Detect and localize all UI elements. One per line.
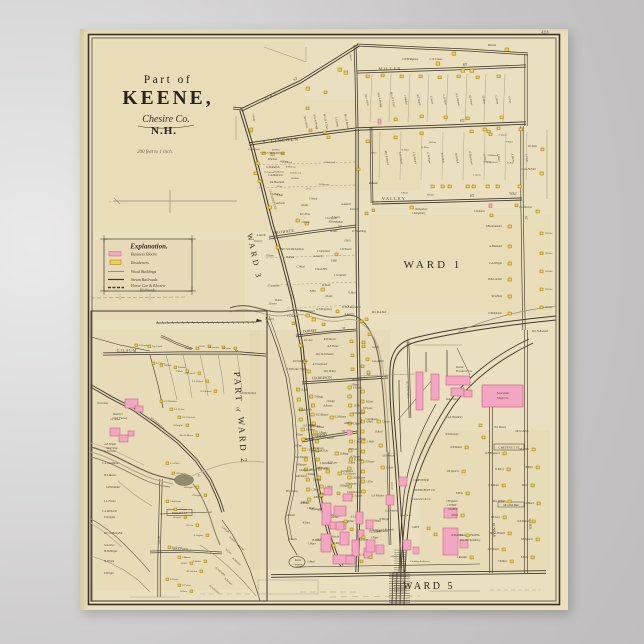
svg-text:A.Fay: A.Fay — [304, 188, 312, 191]
svg-text:L.L.Fisher: L.L.Fisher — [103, 500, 117, 503]
svg-text:Top Lamb: Top Lamb — [152, 345, 163, 348]
svg-text:J.Dodge: J.Dodge — [326, 400, 336, 403]
svg-text:F.Hill: F.Hill — [309, 290, 316, 293]
svg-text:C.L.Mills-Oh: C.L.Mills-Oh — [102, 510, 118, 513]
svg-text:CARPENTER: CARPENTER — [413, 479, 429, 482]
svg-text:Furniture Co.: Furniture Co. — [455, 369, 473, 373]
svg-text:G.A.Wheeler: G.A.Wheeler — [295, 456, 309, 459]
svg-text:P.C.Files: P.C.Files — [299, 213, 310, 216]
svg-text:ROAD: ROAD — [390, 481, 393, 490]
svg-text:G.H.Tyler: G.H.Tyler — [442, 94, 447, 106]
svg-text:J.Piper: J.Piper — [351, 384, 360, 387]
svg-text:O.Atherton: O.Atherton — [519, 206, 532, 209]
svg-text:W.Hale: W.Hale — [545, 232, 553, 235]
svg-text:W.H.Murray: W.H.Murray — [270, 152, 285, 155]
svg-text:A.T.Kingsbury: A.T.Kingsbury — [299, 310, 316, 313]
svg-text:4218: 4218 — [541, 31, 548, 35]
svg-text:A.E.Fisher: A.E.Fisher — [326, 345, 339, 348]
svg-text:A.T.Kingsbury: A.T.Kingsbury — [315, 308, 333, 311]
svg-text:E.Gerry: E.Gerry — [253, 240, 263, 243]
svg-text:O.Beal: O.Beal — [348, 462, 356, 465]
svg-text:ELM: ELM — [359, 416, 363, 423]
svg-text:O.Hart: O.Hart — [348, 291, 356, 294]
svg-text:A.Averill: A.Averill — [256, 234, 266, 237]
svg-text:B.White: B.White — [268, 158, 278, 161]
svg-text:Dunn & Co: Dunn & Co — [399, 514, 412, 517]
svg-text:ST: ST — [342, 326, 346, 330]
svg-text:A.Ellis: A.Ellis — [197, 345, 205, 348]
svg-text:H.Harper: H.Harper — [296, 463, 308, 466]
svg-text:MILLER: MILLER — [379, 66, 402, 71]
svg-text:J.Kingsbury: J.Kingsbury — [412, 212, 426, 215]
svg-text:E.Baker: E.Baker — [177, 366, 186, 369]
svg-text:E.F.Lane: E.F.Lane — [348, 448, 359, 451]
svg-text:A.Basye & Bros: A.Basye & Bros — [389, 555, 406, 558]
svg-text:W.E.Mason: W.E.Mason — [450, 446, 463, 449]
svg-text:S.Ball: S.Ball — [272, 193, 279, 196]
svg-text:W.Dart: W.Dart — [327, 437, 335, 440]
svg-text:C.Rule: C.Rule — [354, 441, 362, 444]
svg-text:J.Towns: J.Towns — [268, 302, 276, 305]
svg-text:A.Fay: A.Fay — [275, 185, 283, 188]
svg-text:R.Toole: R.Toole — [321, 284, 331, 287]
svg-text:C.Rule: C.Rule — [386, 467, 394, 470]
svg-text:Abel Raymond: Abel Raymond — [351, 378, 368, 381]
svg-text:E.Howland: E.Howland — [247, 148, 260, 151]
svg-text:G.W.Piper: G.W.Piper — [426, 152, 431, 165]
svg-text:W.Dart: W.Dart — [298, 409, 306, 412]
svg-text:S.Dickinson: S.Dickinson — [299, 469, 312, 472]
svg-text:G.REY: G.REY — [412, 526, 420, 529]
svg-text:D.Rugg: D.Rugg — [314, 396, 324, 399]
svg-text:W.Hale: W.Hale — [545, 252, 553, 255]
svg-text:BRIGHT ST: BRIGHT ST — [172, 511, 188, 515]
svg-text:S.Porter: S.Porter — [223, 347, 231, 350]
svg-text:E.Gerry: E.Gerry — [349, 208, 360, 211]
svg-text:O.Hale: O.Hale — [180, 590, 188, 593]
svg-text:Mrs H.Way: Mrs H.Way — [323, 370, 337, 373]
svg-text:Keene: Keene — [294, 559, 302, 562]
svg-text:J.W.Bowker Chipps: J.W.Bowker Chipps — [287, 368, 307, 371]
svg-text:HARRISON: HARRISON — [312, 376, 332, 381]
svg-text:WASHINGTON: WASHINGTON — [287, 280, 296, 300]
svg-text:R.W.Sawyer: R.W.Sawyer — [323, 338, 337, 341]
svg-text:Mrs W.J.Wheeler: Mrs W.J.Wheeler — [315, 353, 335, 356]
svg-text:A.Richards: A.Richards — [315, 467, 328, 470]
svg-text:H.Wright: H.Wright — [103, 560, 115, 563]
svg-text:J.W.Towns: J.W.Towns — [340, 248, 352, 251]
svg-text:C.N.Chase: C.N.Chase — [429, 57, 443, 61]
svg-text:J.Arnold: J.Arnold — [285, 514, 295, 517]
svg-text:H.Ray: H.Ray — [506, 161, 514, 164]
svg-text:J.Ellis: J.Ellis — [353, 405, 360, 408]
svg-text:E.Knights: E.Knights — [103, 516, 115, 519]
svg-text:M.Alls: M.Alls — [325, 295, 333, 298]
svg-text:Part of: Part of — [144, 74, 192, 86]
svg-text:J.B.Spencer: J.B.Spencer — [447, 470, 460, 473]
svg-text:W.Murray: W.Murray — [274, 170, 285, 173]
svg-text:Fielding & Stearns: Fielding & Stearns — [409, 560, 429, 563]
svg-text:B.White: B.White — [272, 149, 281, 152]
svg-text:S.P.Whitaker: S.P.Whitaker — [164, 400, 177, 403]
svg-text:A.Ball: A.Ball — [300, 389, 308, 392]
svg-text:W.F.Bragmore: W.F.Bragmore — [485, 452, 501, 455]
svg-text:C.Babcock: C.Babcock — [324, 161, 336, 164]
svg-text:P.C.Lee: P.C.Lee — [303, 339, 313, 342]
svg-text:Shop Co.: Shop Co. — [497, 396, 509, 400]
svg-text:E.Howland: E.Howland — [259, 151, 272, 154]
svg-text:E.F.Lane: E.F.Lane — [304, 438, 315, 441]
svg-text:H.Harper: H.Harper — [349, 455, 361, 458]
svg-text:S.P.Whitaker: S.P.Whitaker — [106, 486, 121, 489]
svg-text:W.Dart: W.Dart — [366, 401, 374, 404]
svg-text:O.Fox: O.Fox — [507, 96, 512, 104]
svg-text:W.Hale: W.Hale — [427, 193, 435, 196]
svg-text:J.Q.Jones: J.Q.Jones — [468, 94, 473, 105]
svg-text:A.Brown: A.Brown — [322, 404, 333, 407]
svg-text:J.Piper: J.Piper — [310, 508, 319, 511]
svg-text:A.Richards: A.Richards — [375, 530, 388, 533]
svg-text:M.Amidon: M.Amidon — [208, 346, 220, 349]
svg-text:E.Staples: E.Staples — [193, 534, 203, 537]
svg-text:C.Rule: C.Rule — [311, 489, 319, 492]
svg-text:G.Farwell: G.Farwell — [104, 450, 116, 453]
svg-text:W.Hale: W.Hale — [545, 288, 553, 291]
svg-text:Mrs L.Perry: Mrs L.Perry — [514, 430, 529, 433]
svg-text:W.Dart: W.Dart — [347, 520, 355, 523]
svg-text:Mrs M.Hall: Mrs M.Hall — [492, 500, 506, 503]
svg-text:C.Fisher: C.Fisher — [182, 584, 191, 587]
svg-text:C.H.Bridgman: C.H.Bridgman — [402, 58, 419, 61]
svg-text:A.Hubbard: A.Hubbard — [488, 244, 502, 248]
svg-text:L.L.Fisher: L.L.Fisher — [173, 408, 185, 411]
svg-text:Mrs Olds: Mrs Olds — [518, 448, 529, 451]
svg-text:J.Piper: J.Piper — [355, 495, 364, 498]
svg-text:W.Smith: W.Smith — [173, 516, 182, 519]
svg-text:A.Ball: A.Ball — [365, 421, 373, 424]
svg-text:D.Tolery: D.Tolery — [494, 468, 505, 471]
svg-text:W.Hale: W.Hale — [545, 270, 553, 273]
svg-text:Mrs O.Morse: Mrs O.Morse — [179, 434, 194, 437]
svg-text:S.Porter: S.Porter — [170, 578, 178, 581]
svg-text:PEARL: PEARL — [157, 535, 161, 545]
svg-text:F.Foster: F.Foster — [364, 461, 375, 464]
svg-text:Wood Buildings: Wood Buildings — [131, 269, 157, 274]
svg-text:J.Adams: J.Adams — [473, 173, 482, 176]
svg-text:A.Knight: A.Knight — [177, 508, 187, 511]
svg-text:C.Wood: C.Wood — [296, 265, 305, 268]
svg-text:S.Randall: S.Randall — [457, 556, 467, 559]
svg-text:N.Batch: N.Batch — [525, 502, 535, 505]
svg-text:W.Dinsmore: W.Dinsmore — [445, 433, 459, 436]
svg-text:F.Foster: F.Foster — [305, 429, 316, 432]
svg-text:F.Jones: F.Jones — [429, 94, 434, 104]
svg-text:A.Richards: A.Richards — [294, 475, 307, 478]
svg-text:G.A.Wheeler: G.A.Wheeler — [371, 494, 385, 497]
svg-text:F.Nims: F.Nims — [520, 556, 528, 559]
svg-text:J.B.Spencer: J.B.Spencer — [521, 538, 534, 541]
svg-text:L.A.Wright: L.A.Wright — [488, 261, 502, 265]
svg-text:ST: ST — [338, 224, 343, 228]
svg-text:N.L.Raven: N.L.Raven — [199, 390, 211, 393]
svg-text:VALLEY: VALLEY — [382, 196, 406, 201]
svg-text:L.Wells: L.Wells — [366, 441, 375, 444]
svg-text:J.A.Poole: J.A.Poole — [274, 202, 286, 205]
svg-text:T.Ryan: T.Ryan — [353, 423, 361, 426]
svg-text:D.Rugg: D.Rugg — [312, 479, 322, 482]
svg-text:ST: ST — [470, 194, 475, 198]
svg-text:O.D.Mason: O.D.Mason — [353, 477, 366, 480]
svg-text:J.Carpenter: J.Carpenter — [334, 274, 347, 277]
svg-text:S.A.Giles: S.A.Giles — [170, 462, 179, 465]
svg-text:GILSUM: GILSUM — [117, 349, 138, 353]
svg-text:W.L.Mason: W.L.Mason — [494, 426, 507, 429]
svg-text:J.Lawrence & Co.: J.Lawrence & Co. — [412, 498, 431, 501]
svg-text:ST: ST — [463, 63, 468, 67]
svg-text:DUNBAR: DUNBAR — [492, 523, 497, 538]
svg-text:C.A.Babcock: C.A.Babcock — [268, 174, 283, 177]
svg-text:W.Dart: W.Dart — [302, 522, 310, 525]
svg-text:J.Ellis: J.Ellis — [366, 481, 373, 484]
svg-text:L.L.Pickett: L.L.Pickett — [191, 380, 203, 383]
svg-text:J.Ryan: J.Ryan — [348, 53, 353, 61]
svg-text:H.Ames: H.Ames — [481, 94, 486, 104]
svg-text:G.Ball: G.Ball — [372, 346, 379, 349]
svg-text:E.Beach: E.Beach — [368, 182, 378, 185]
svg-text:O.Beal: O.Beal — [307, 561, 315, 564]
svg-text:Mrs N.Buswell: Mrs N.Buswell — [531, 330, 548, 333]
svg-text:E.Gerry: E.Gerry — [265, 318, 275, 321]
svg-text:F.Wright: F.Wright — [103, 572, 114, 575]
svg-text:W.Dart: W.Dart — [295, 444, 303, 447]
svg-text:Mrs M.R.Hall: Mrs M.R.Hall — [502, 504, 519, 507]
svg-text:200 feet to 1 inch.: 200 feet to 1 inch. — [137, 150, 173, 155]
svg-text:D.Rugg: D.Rugg — [339, 453, 349, 456]
svg-text:Mrs O.Hemphill: Mrs O.Hemphill — [103, 532, 123, 535]
svg-text:C.L.Gilchrist: C.L.Gilchrist — [182, 416, 196, 419]
svg-text:F.Hill: F.Hill — [344, 240, 351, 243]
svg-text:O.D.Mason: O.D.Mason — [365, 418, 378, 421]
svg-text:E.F.Lane: E.F.Lane — [311, 450, 322, 453]
svg-text:KEENE BEEF CO: KEENE BEEF CO — [413, 489, 435, 492]
svg-text:CHESTNUT ST: CHESTNUT ST — [498, 446, 519, 450]
svg-text:H.Wright: H.Wright — [183, 486, 194, 489]
svg-text:Mrs S.W.Richardson: Mrs S.W.Richardson — [280, 248, 304, 251]
svg-text:ST: ST — [460, 119, 465, 123]
svg-text:J.Towns: J.Towns — [301, 221, 309, 224]
svg-text:F.Nims: F.Nims — [455, 492, 463, 495]
svg-text:Railroads: Railroads — [139, 288, 156, 293]
svg-text:F.Ward: F.Ward — [505, 140, 514, 143]
svg-text:J.T.Sawyer: J.T.Sawyer — [287, 315, 299, 318]
svg-text:G.Corbett: G.Corbett — [110, 418, 120, 421]
svg-text:C.Babcock: C.Babcock — [290, 171, 302, 174]
svg-text:J.Bullivant: J.Bullivant — [170, 500, 181, 503]
svg-text:J.Dodge: J.Dodge — [306, 473, 316, 476]
svg-text:O.Hart: O.Hart — [336, 221, 344, 224]
svg-text:Mrs J.H.Smith: Mrs J.H.Smith — [489, 532, 506, 535]
svg-text:H.H.Harper: H.H.Harper — [103, 550, 119, 553]
svg-text:J.W.Denniston: J.W.Denniston — [292, 360, 308, 363]
svg-text:G.Piper: G.Piper — [401, 149, 409, 152]
svg-text:W.Hale: W.Hale — [545, 306, 553, 309]
svg-text:W.Dart: W.Dart — [296, 433, 304, 436]
svg-text:H.Pond: H.Pond — [285, 256, 295, 259]
svg-text:J.Kim: J.Kim — [521, 168, 527, 171]
svg-text:J.Carpenter: J.Carpenter — [317, 250, 331, 253]
svg-text:LIVERY: LIVERY — [447, 504, 456, 507]
svg-text:O.D.Mason: O.D.Mason — [353, 412, 366, 415]
svg-text:H.Ray: H.Ray — [509, 193, 517, 196]
svg-text:O.D.Mason: O.D.Mason — [303, 424, 316, 427]
svg-text:WARD 1: WARD 1 — [404, 259, 463, 271]
svg-text:J.Piper: J.Piper — [371, 536, 380, 539]
svg-text:J.W.Buss: J.W.Buss — [498, 560, 507, 563]
svg-text:H.B.Abbott: H.B.Abbott — [450, 534, 463, 537]
svg-text:O.Beal: O.Beal — [295, 566, 303, 569]
svg-text:A.T.Carpenter: A.T.Carpenter — [312, 363, 329, 366]
svg-text:Frank Hill: Frank Hill — [314, 268, 327, 271]
svg-text:J.Piper: J.Piper — [308, 542, 317, 545]
svg-text:A.Averill: A.Averill — [343, 313, 353, 316]
svg-text:P.Beal: P.Beal — [450, 514, 458, 517]
svg-text:U.Spaulding: U.Spaulding — [352, 230, 367, 233]
svg-text:F.Ward: F.Ward — [400, 191, 409, 194]
svg-text:W.H.B.Raymond: W.H.B.Raymond — [342, 306, 361, 309]
svg-text:W.S.Hale: W.S.Hale — [491, 294, 502, 298]
svg-text:H.Harper: H.Harper — [378, 518, 390, 521]
svg-text:C.Dean: C.Dean — [494, 95, 499, 105]
svg-text:WARD 5: WARD 5 — [403, 581, 455, 592]
svg-text:J.Osborne: J.Osborne — [474, 210, 486, 213]
svg-text:G.Aldrich: G.Aldrich — [282, 161, 293, 164]
svg-text:G.B.Robie: G.B.Robie — [488, 484, 500, 487]
svg-text:O.Beal: O.Beal — [375, 430, 383, 433]
svg-text:E.Baker: E.Baker — [192, 560, 201, 563]
svg-text:S.A.Giles: S.A.Giles — [104, 544, 114, 547]
svg-text:A.Hubbard: A.Hubbard — [486, 154, 499, 157]
svg-text:KEENE,: KEENE, — [122, 88, 213, 109]
svg-text:J.Kim: J.Kim — [371, 152, 377, 155]
svg-text:T.Ryan: T.Ryan — [382, 421, 390, 424]
svg-text:S.Dickinson: S.Dickinson — [311, 447, 324, 450]
svg-text:J.Kimball: J.Kimball — [454, 152, 459, 164]
svg-text:A.L.Skinner: A.L.Skinner — [454, 92, 460, 107]
svg-text:O.D.Mason: O.D.Mason — [343, 473, 356, 476]
svg-text:T.Kirk: T.Kirk — [521, 484, 528, 487]
svg-text:Steam Railroads: Steam Railroads — [131, 277, 158, 282]
svg-text:B.White: B.White — [291, 177, 300, 180]
svg-text:Explanation.: Explanation. — [129, 243, 168, 251]
svg-text:H.Raymond: H.Raymond — [468, 150, 474, 165]
svg-text:O.D.Mason: O.D.Mason — [334, 415, 347, 418]
svg-text:G.A.Wheeler: G.A.Wheeler — [385, 509, 399, 512]
svg-text:F.Foster: F.Foster — [352, 387, 363, 390]
svg-text:E.F.Lane: E.F.Lane — [327, 462, 338, 465]
svg-text:W.Murray: W.Murray — [319, 183, 330, 186]
svg-text:S.Dickinson: S.Dickinson — [382, 454, 395, 457]
svg-text:S.Knights: S.Knights — [173, 424, 183, 427]
svg-text:STABLE: STABLE — [448, 508, 458, 511]
svg-text:W.Hale: W.Hale — [429, 141, 437, 144]
svg-text:W.E.Mason: W.E.Mason — [517, 520, 530, 523]
svg-text:J.Buckminster: J.Buckminster — [486, 224, 503, 228]
svg-text:BEAVER MILL: BEAVER MILL — [405, 381, 409, 399]
svg-text:A.F.Wright: A.F.Wright — [487, 548, 499, 551]
svg-text:T.Gates: T.Gates — [289, 538, 297, 541]
svg-text:J.H.Spalter: J.H.Spalter — [446, 500, 459, 503]
svg-text:Top Lamb: Top Lamb — [172, 546, 183, 549]
svg-text:Mrs Colony: Mrs Colony — [285, 490, 299, 493]
svg-text:J.Mason: J.Mason — [182, 556, 191, 559]
svg-text:M.Alls: M.Alls — [300, 204, 308, 207]
svg-text:E.Gerry: E.Gerry — [331, 216, 341, 219]
svg-text:Chesire Co.: Chesire Co. — [142, 114, 189, 125]
svg-text:T.Wells: T.Wells — [176, 370, 183, 373]
svg-text:E.Staples: E.Staples — [138, 344, 148, 347]
svg-text:G.Farwell: G.Farwell — [185, 372, 196, 375]
svg-text:ST: ST — [342, 429, 346, 433]
svg-text:H.Harper: H.Harper — [175, 472, 186, 475]
svg-text:E.F.Lane: E.F.Lane — [362, 407, 373, 410]
svg-text:O.Hale: O.Hale — [164, 364, 172, 367]
svg-text:A.Averill: A.Averill — [340, 203, 351, 206]
svg-text:Mrs M.E.Woodbury: Mrs M.E.Woodbury — [459, 539, 481, 542]
svg-text:J.Kingsbury: J.Kingsbury — [414, 208, 428, 211]
svg-text:C.L.Gooldnow: C.L.Gooldnow — [102, 462, 119, 465]
svg-text:A.Brown: A.Brown — [316, 436, 327, 439]
svg-text:G.H.Tyler: G.H.Tyler — [525, 168, 537, 171]
svg-text:O.Beal: O.Beal — [317, 426, 325, 429]
svg-text:B.Riley: B.Riley — [525, 466, 533, 469]
svg-text:Residences: Residences — [130, 260, 149, 265]
svg-text:O.Robinson: O.Robinson — [488, 311, 502, 315]
svg-text:Geo.A.Ball: Geo.A.Ball — [372, 360, 384, 363]
svg-text:J.Piper: J.Piper — [319, 432, 328, 435]
svg-text:Ed.Howland: Ed.Howland — [269, 181, 285, 184]
svg-text:M.Alls: M.Alls — [329, 230, 337, 233]
svg-text:Dr.Tyler: Dr.Tyler — [527, 145, 538, 148]
svg-text:A.E.Wright: A.E.Wright — [103, 443, 116, 446]
svg-text:J.H.Grey: J.H.Grey — [491, 516, 501, 519]
svg-text:O.D.Mason: O.D.Mason — [316, 414, 329, 417]
svg-text:M.Amidon: M.Amidon — [186, 570, 198, 573]
svg-text:J.Carpenter: J.Carpenter — [267, 285, 280, 288]
svg-text:D.Rugg: D.Rugg — [300, 501, 310, 504]
svg-text:Mason: Mason — [487, 43, 497, 47]
svg-text:Mrs M.A.Ball: Mrs M.A.Ball — [371, 311, 386, 314]
svg-text:O.D.Mason: O.D.Mason — [341, 470, 354, 473]
svg-text:J.Adams: J.Adams — [498, 133, 507, 136]
svg-text:J.Towns: J.Towns — [265, 255, 273, 258]
svg-text:F.Wright: F.Wright — [191, 494, 201, 497]
svg-text:D.Rugg: D.Rugg — [339, 484, 349, 487]
svg-text:C.Wood: C.Wood — [309, 198, 318, 201]
svg-text:G.H.Aldrich: G.H.Aldrich — [266, 166, 280, 169]
svg-text:A.Brown: A.Brown — [343, 422, 354, 425]
svg-text:O.Gurnsey: O.Gurnsey — [97, 402, 109, 405]
svg-text:Impervious: Impervious — [445, 398, 458, 401]
svg-text:O.Nims: O.Nims — [421, 146, 429, 149]
svg-text:W.B.Corbett: W.B.Corbett — [488, 277, 502, 281]
svg-text:O.Nims: O.Nims — [484, 161, 492, 164]
svg-text:A.Averill: A.Averill — [312, 255, 322, 258]
svg-text:H.L.Raven: H.L.Raven — [103, 474, 117, 477]
svg-text:A.Brown: A.Brown — [313, 496, 324, 499]
svg-text:R.Cole: R.Cole — [185, 524, 194, 527]
svg-text:W.Murray: W.Murray — [286, 166, 297, 169]
svg-text:Business Blocks: Business Blocks — [131, 252, 157, 257]
